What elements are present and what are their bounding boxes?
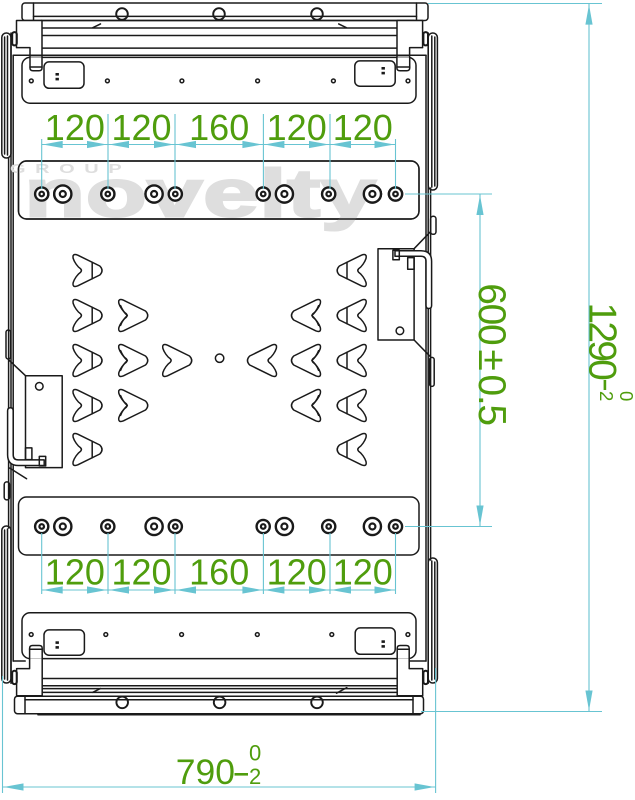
svg-text:120: 120 bbox=[111, 552, 171, 593]
svg-text:2: 2 bbox=[596, 391, 617, 401]
svg-text:0: 0 bbox=[616, 391, 635, 401]
svg-text:120: 120 bbox=[45, 107, 105, 148]
svg-text:120: 120 bbox=[45, 552, 105, 593]
svg-text:120: 120 bbox=[333, 107, 393, 148]
svg-text:0: 0 bbox=[249, 741, 261, 766]
svg-text:120: 120 bbox=[267, 552, 327, 593]
svg-text:160: 160 bbox=[189, 552, 249, 593]
svg-text:120: 120 bbox=[333, 552, 393, 593]
svg-text:600±0.5: 600±0.5 bbox=[470, 283, 513, 425]
svg-text:2: 2 bbox=[249, 764, 261, 789]
svg-text:160: 160 bbox=[189, 107, 249, 148]
svg-text:790: 790 bbox=[176, 752, 235, 792]
svg-text:1290: 1290 bbox=[581, 302, 624, 380]
svg-text:120: 120 bbox=[111, 107, 171, 148]
svg-text:120: 120 bbox=[267, 107, 327, 148]
